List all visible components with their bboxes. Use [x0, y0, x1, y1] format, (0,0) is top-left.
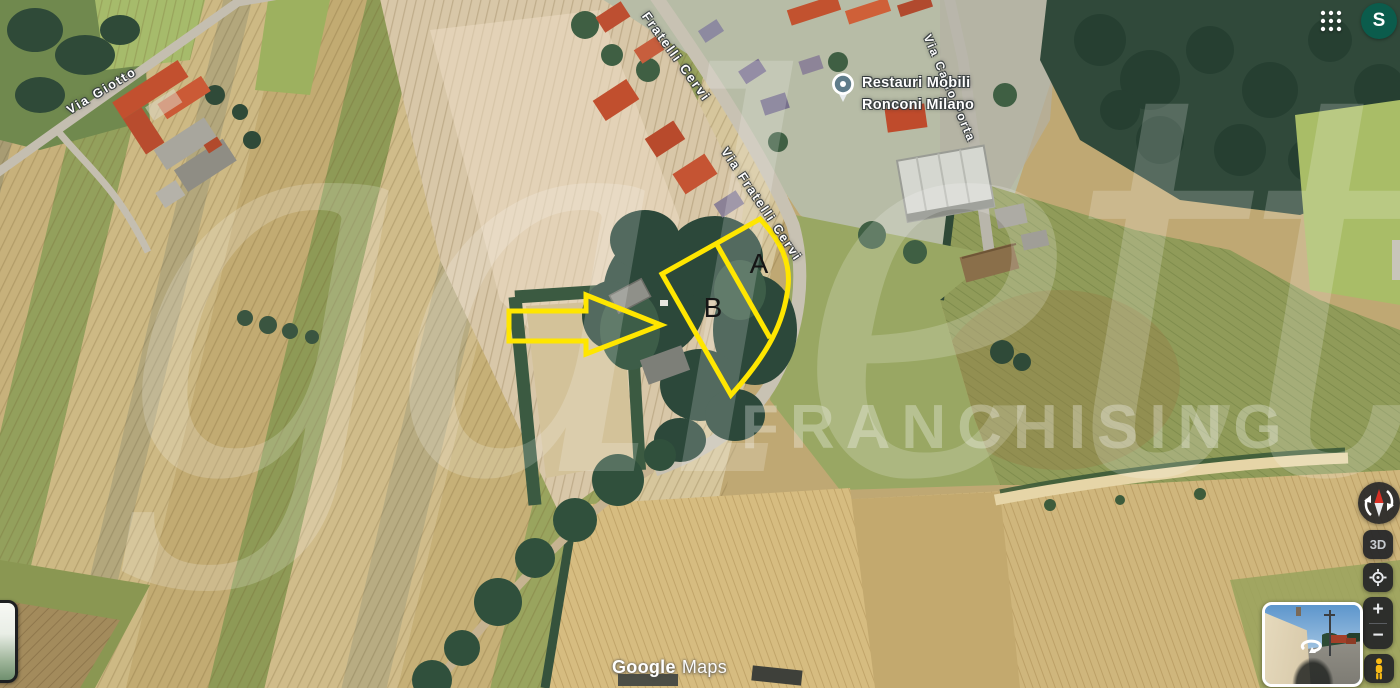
- street-view-thumbnail[interactable]: [1262, 602, 1363, 687]
- google-maps-logo[interactable]: Google Maps: [612, 657, 727, 678]
- tilt-3d-button[interactable]: 3D: [1363, 530, 1393, 559]
- account-avatar[interactable]: S: [1361, 3, 1397, 39]
- street-view-pole: [1329, 610, 1331, 656]
- poi-name-line2: Ronconi Milano: [862, 94, 974, 116]
- google-maps-logo-maps: Maps: [682, 657, 727, 678]
- poi-restauri-mobili[interactable]: Restauri Mobili Ronconi Milano: [830, 72, 974, 116]
- map-viewport[interactable]: galetti FRANCHISING A B Fratelli Cervi V…: [0, 0, 1400, 688]
- street-view-pole-arm: [1324, 614, 1335, 616]
- google-maps-logo-google: Google: [612, 657, 676, 678]
- compass-button[interactable]: [1358, 482, 1400, 524]
- street-view-house-roof-2: [1346, 638, 1356, 644]
- google-apps-grid-icon: [1319, 9, 1343, 33]
- map-pin-icon[interactable]: [830, 72, 856, 104]
- zoom-control[interactable]: + −: [1363, 597, 1393, 649]
- google-apps-button[interactable]: [1317, 7, 1345, 35]
- pegman-button[interactable]: [1364, 654, 1394, 683]
- street-view-chimney: [1296, 607, 1301, 616]
- compass-icon: [1358, 482, 1400, 524]
- my-location-icon: [1369, 568, 1387, 587]
- street-view-shadow: [1292, 657, 1335, 684]
- my-location-button[interactable]: [1363, 563, 1393, 592]
- zoom-out-button[interactable]: −: [1363, 624, 1393, 650]
- zoom-in-button[interactable]: +: [1363, 597, 1393, 623]
- rotate-arrow-icon: [1299, 638, 1325, 654]
- pegman-icon: [1372, 658, 1386, 680]
- street-view-house-roof: [1330, 635, 1347, 643]
- left-edge-thumbnail[interactable]: [0, 600, 18, 683]
- poi-name-line1: Restauri Mobili: [862, 72, 974, 94]
